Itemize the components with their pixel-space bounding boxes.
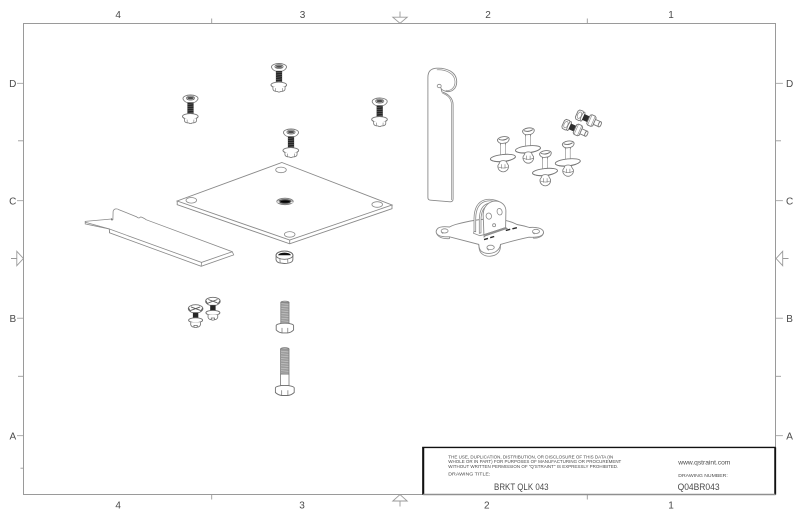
svg-text:3: 3: [300, 10, 306, 21]
svg-text:A: A: [786, 431, 793, 442]
svg-text:D: D: [786, 79, 793, 90]
svg-text:2: 2: [484, 501, 490, 512]
svg-text:www.qstraint.com: www.qstraint.com: [677, 459, 730, 466]
svg-text:C: C: [9, 196, 16, 207]
svg-text:WITHOUT WRITTEN PERMISSION OF: WITHOUT WRITTEN PERMISSION OF "Q'STRAINT…: [448, 464, 618, 469]
svg-text:B: B: [9, 314, 16, 325]
svg-text:D: D: [9, 79, 16, 90]
svg-text:1: 1: [668, 501, 674, 512]
svg-text:DRAWING TITLE:: DRAWING TITLE:: [448, 472, 490, 478]
svg-text:1: 1: [668, 10, 674, 21]
svg-text:BRKT QLK 043: BRKT QLK 043: [494, 481, 549, 492]
svg-text:C: C: [786, 196, 793, 207]
svg-text:4: 4: [115, 501, 121, 512]
svg-text:Q04BR043: Q04BR043: [678, 481, 720, 492]
svg-text:3: 3: [299, 501, 305, 512]
svg-text:2: 2: [485, 10, 491, 21]
svg-text:A: A: [9, 431, 16, 442]
svg-text:B: B: [786, 314, 793, 325]
svg-text:4: 4: [115, 10, 121, 21]
svg-text:DRAWING NUMBER:: DRAWING NUMBER:: [678, 473, 728, 479]
